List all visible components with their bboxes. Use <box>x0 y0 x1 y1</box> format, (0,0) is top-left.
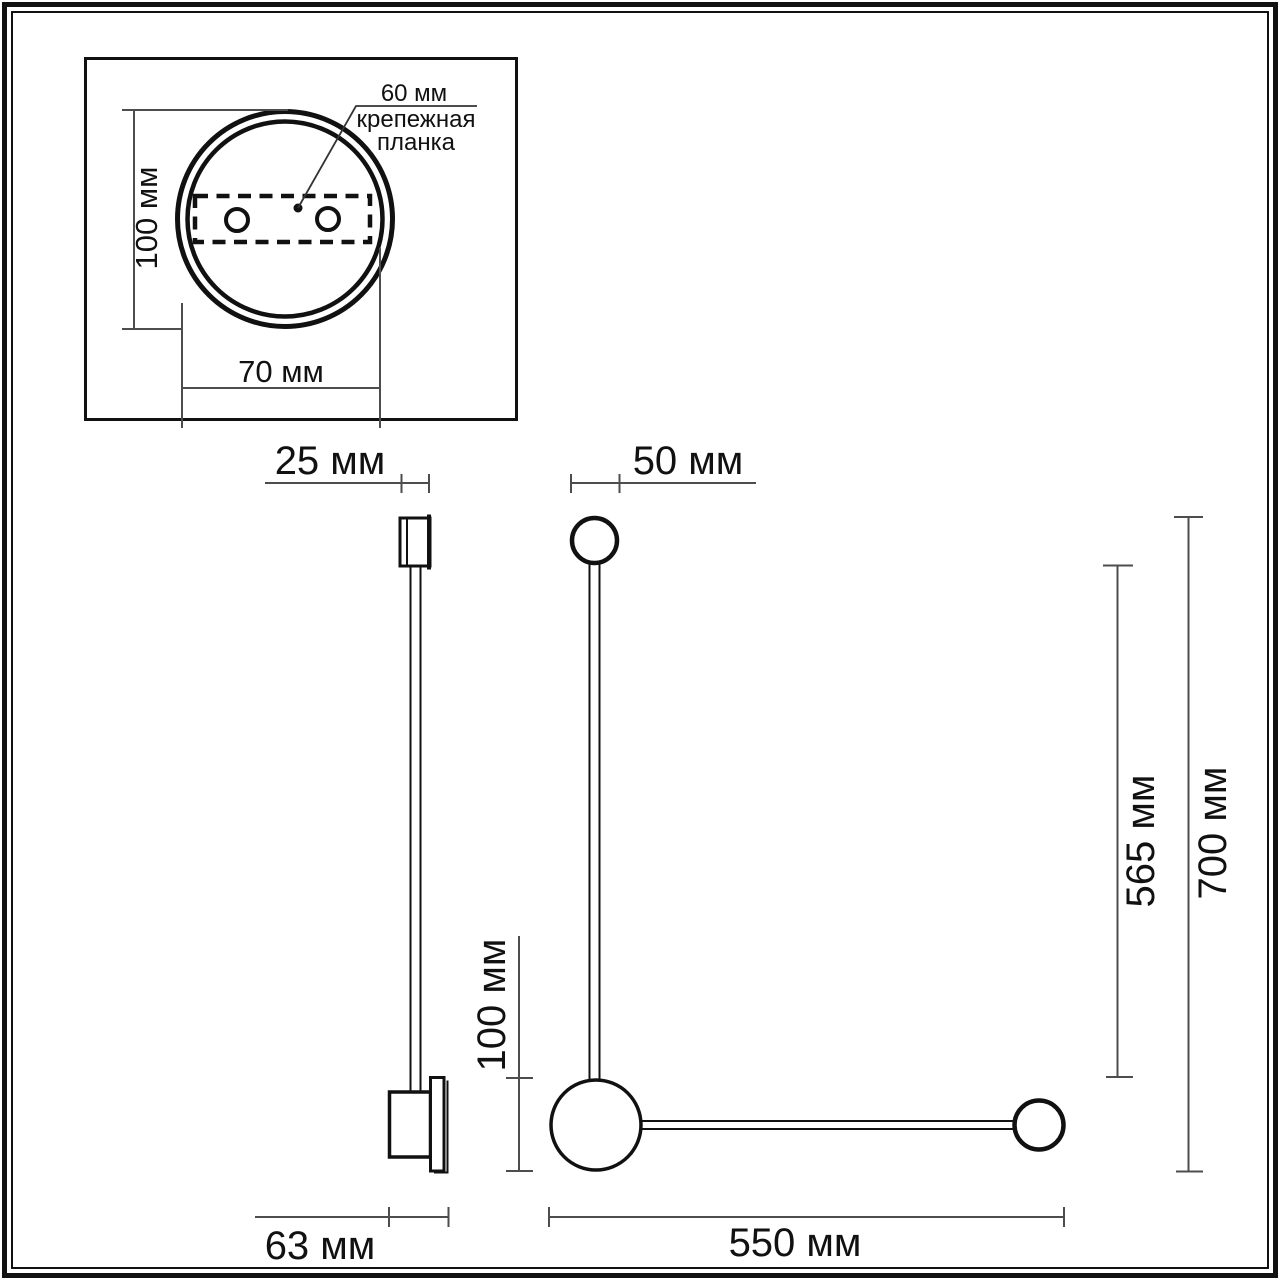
technical-drawing-canvas: 100 мм 70 мм 60 мм крепежная планка 25 м… <box>0 0 1280 1280</box>
lamp-back-inner-circle <box>188 122 383 317</box>
side-wall-plate <box>431 1078 445 1172</box>
front-ball <box>551 1080 641 1170</box>
front-rod <box>590 563 600 1080</box>
front-arm-end-circle <box>1015 1101 1064 1150</box>
side-lamp-body <box>390 1092 431 1157</box>
back-width-label: 70 мм <box>238 354 324 389</box>
mounting-plate-label-line2: планка <box>377 129 456 156</box>
front-head-circle <box>572 518 617 563</box>
hole-spacing-label: 60 мм <box>381 80 447 107</box>
front-head-diameter-label: 50 мм <box>633 439 744 483</box>
inner-border <box>12 12 1268 1268</box>
front-ball-diameter-label: 100 мм <box>470 939 514 1072</box>
wall-lamp-dimension-drawing: 100 мм 70 мм 60 мм крепежная планка 25 м… <box>0 0 1280 1280</box>
front-arm-length-label: 550 мм <box>729 1221 862 1265</box>
lamp-back-outer-circle <box>178 112 393 327</box>
inset-width-dimension <box>182 248 380 428</box>
back-height-label: 100 мм <box>129 167 164 270</box>
mounting-hole-left <box>226 209 248 231</box>
side-depth-label: 63 мм <box>265 1224 376 1268</box>
front-rod-length-label: 565 мм <box>1119 775 1163 908</box>
side-rod <box>411 566 421 1093</box>
front-total-height-label: 700 мм <box>1191 767 1235 900</box>
mounting-plate-dashed-outline <box>195 196 370 242</box>
front-arm <box>640 1121 1014 1129</box>
side-cap <box>400 518 430 566</box>
side-cap-width-label: 25 мм <box>275 439 386 483</box>
mounting-hole-right <box>317 208 339 230</box>
